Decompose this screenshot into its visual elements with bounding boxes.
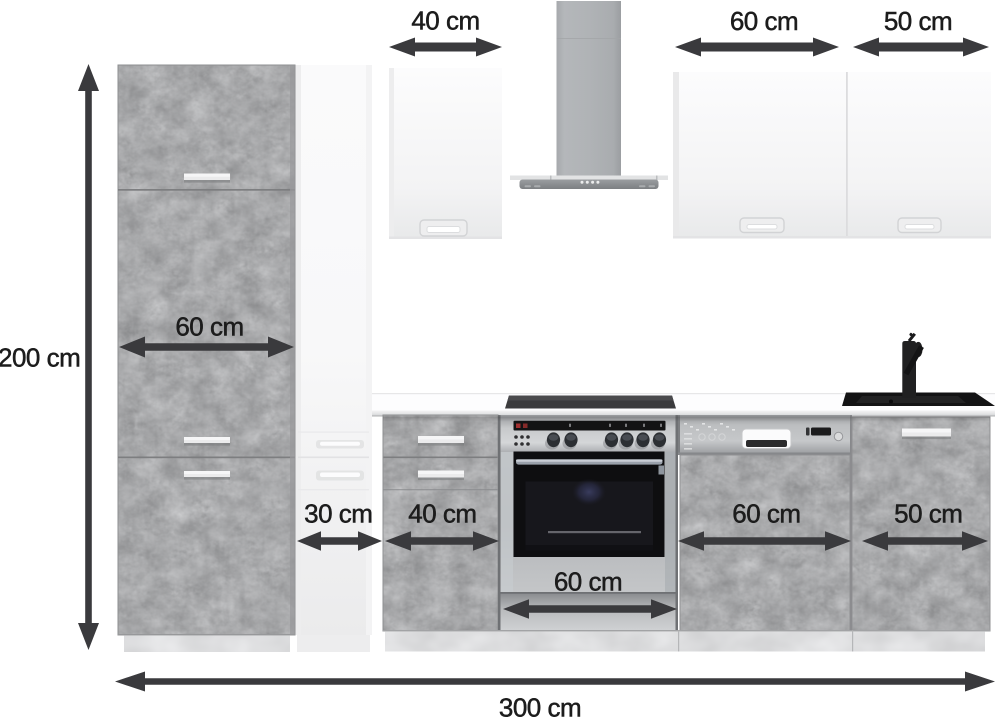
svg-text:50 cm: 50 cm <box>894 498 962 528</box>
svg-text:30 cm: 30 cm <box>304 498 372 528</box>
svg-text:60 cm: 60 cm <box>175 311 243 341</box>
svg-text:300 cm: 300 cm <box>499 692 581 719</box>
svg-text:200 cm: 200 cm <box>0 342 80 372</box>
svg-text:60 cm: 60 cm <box>732 498 800 528</box>
svg-text:50 cm: 50 cm <box>884 6 952 36</box>
svg-text:40 cm: 40 cm <box>411 5 479 35</box>
svg-text:40 cm: 40 cm <box>408 498 476 528</box>
svg-text:60 cm: 60 cm <box>554 566 622 596</box>
svg-text:60 cm: 60 cm <box>730 6 798 36</box>
